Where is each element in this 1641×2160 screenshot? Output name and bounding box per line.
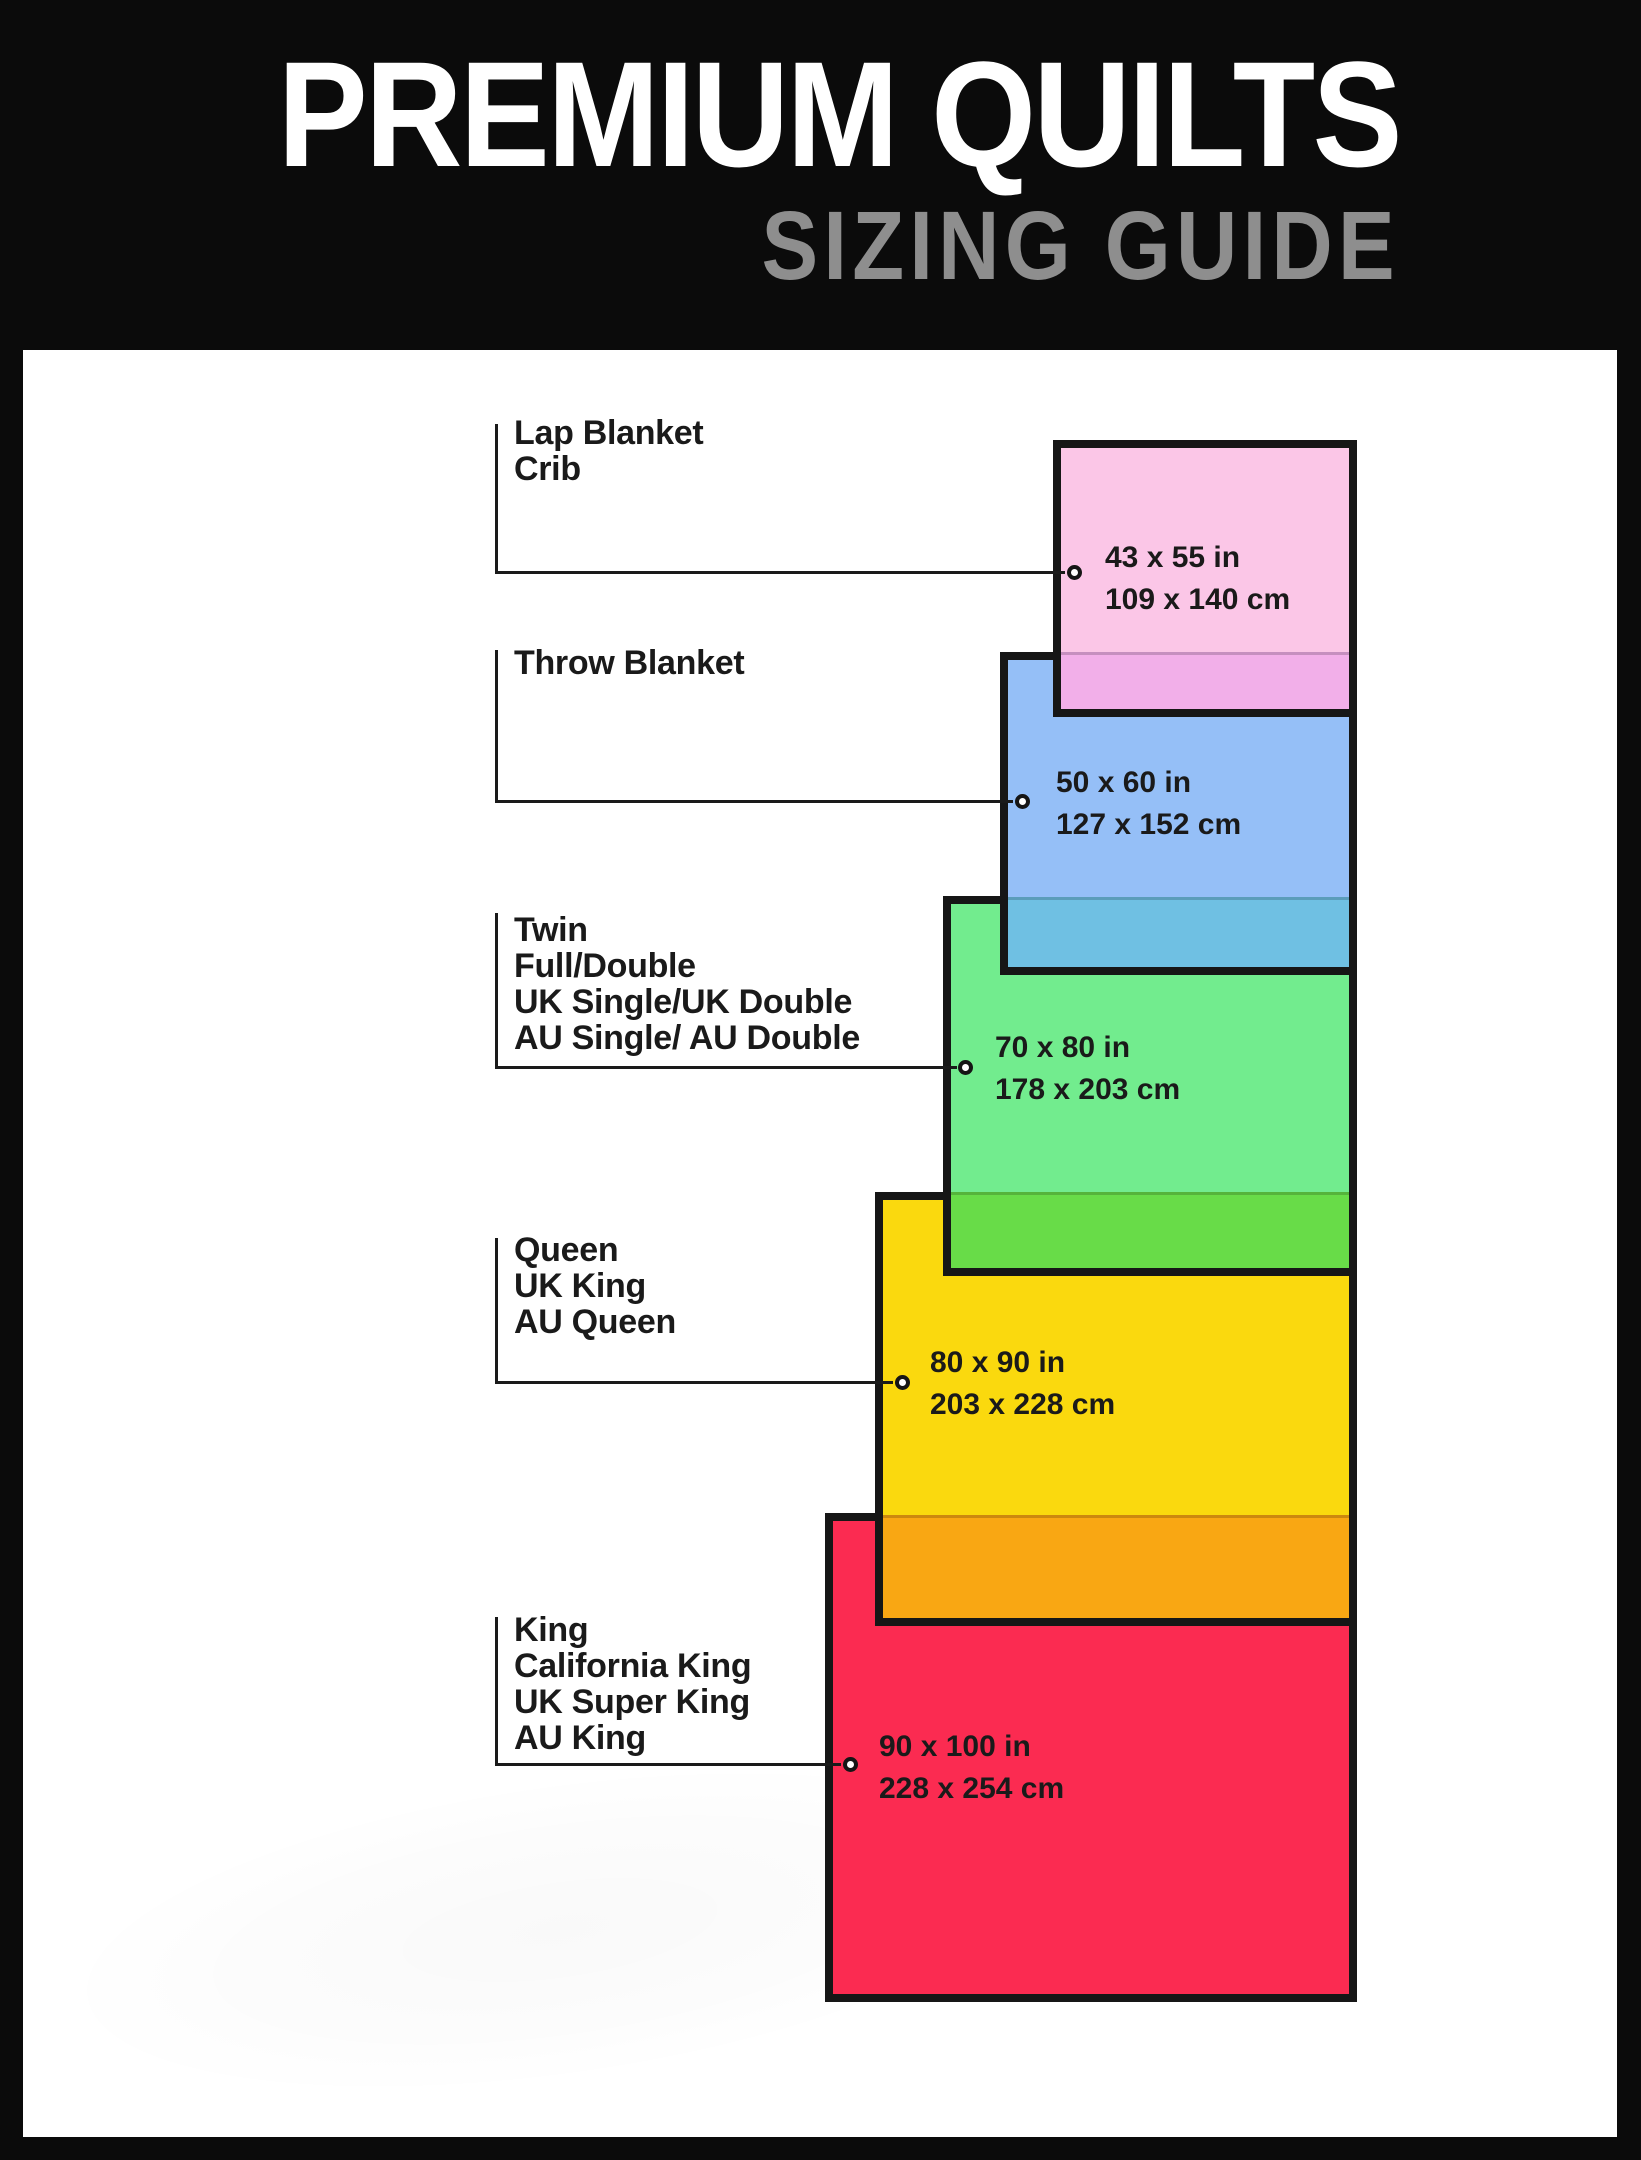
header: PREMIUM QUILTS SIZING GUIDE (153, 38, 1400, 296)
dimension-cm: 178 x 203 cm (995, 1069, 1180, 1111)
connector-vline (495, 1238, 498, 1383)
label-line: UK King (514, 1268, 676, 1304)
size-label: Queen UK King AU Queen (514, 1232, 676, 1340)
dimension-cm: 127 x 152 cm (1056, 804, 1241, 846)
dimension-inches: 80 x 90 in (930, 1342, 1115, 1384)
overlap-band-twin-queen (951, 1192, 1349, 1268)
label-line: King (514, 1612, 751, 1648)
connector-dot (895, 1375, 910, 1390)
dimension-inches: 50 x 60 in (1056, 762, 1241, 804)
dimension-inches: 90 x 100 in (879, 1726, 1064, 1768)
label-line: Throw Blanket (514, 645, 744, 681)
connector-hline (495, 571, 1065, 574)
label-line: AU King (514, 1720, 751, 1756)
dimension-text: 43 x 55 in 109 x 140 cm (1105, 537, 1290, 621)
overlap-band-queen-king (883, 1515, 1349, 1618)
connector-vline (495, 650, 498, 802)
dimension-text: 70 x 80 in 178 x 203 cm (995, 1027, 1180, 1111)
dimension-text: 90 x 100 in 228 x 254 cm (879, 1726, 1064, 1810)
size-label: Throw Blanket (514, 645, 744, 681)
connector-hline (495, 1066, 957, 1069)
label-line: Queen (514, 1232, 676, 1268)
label-line: UK Single/UK Double (514, 984, 860, 1020)
size-label: King California King UK Super King AU Ki… (514, 1612, 751, 1756)
label-line: AU Single/ AU Double (514, 1020, 860, 1056)
dimension-inches: 70 x 80 in (995, 1027, 1180, 1069)
connector-vline (495, 1617, 498, 1765)
dimension-text: 50 x 60 in 127 x 152 cm (1056, 762, 1241, 846)
label-line: Crib (514, 451, 703, 487)
label-line: Lap Blanket (514, 415, 703, 451)
dimension-cm: 228 x 254 cm (879, 1768, 1064, 1810)
label-line: California King (514, 1648, 751, 1684)
label-line: AU Queen (514, 1304, 676, 1340)
dimension-inches: 43 x 55 in (1105, 537, 1290, 579)
connector-hline (495, 1381, 893, 1384)
overlap-band-throw-twin (1008, 897, 1349, 967)
dimension-text: 80 x 90 in 203 x 228 cm (930, 1342, 1115, 1426)
connector-vline (495, 424, 498, 573)
connector-hline (495, 1763, 841, 1766)
connector-dot (1067, 565, 1082, 580)
label-line: UK Super King (514, 1684, 751, 1720)
label-line: Full/Double (514, 948, 860, 984)
connector-dot (1015, 794, 1030, 809)
overlap-band-lap-throw (1061, 652, 1349, 709)
page-title: PREMIUM QUILTS (278, 38, 1400, 190)
size-label: Twin Full/Double UK Single/UK Double AU … (514, 912, 860, 1056)
size-label: Lap Blanket Crib (514, 415, 703, 487)
page-subtitle: SIZING GUIDE (309, 196, 1400, 296)
connector-dot (843, 1757, 858, 1772)
connector-vline (495, 913, 498, 1068)
dimension-cm: 203 x 228 cm (930, 1384, 1115, 1426)
label-line: Twin (514, 912, 860, 948)
dimension-cm: 109 x 140 cm (1105, 579, 1290, 621)
connector-hline (495, 800, 1013, 803)
connector-dot (958, 1060, 973, 1075)
